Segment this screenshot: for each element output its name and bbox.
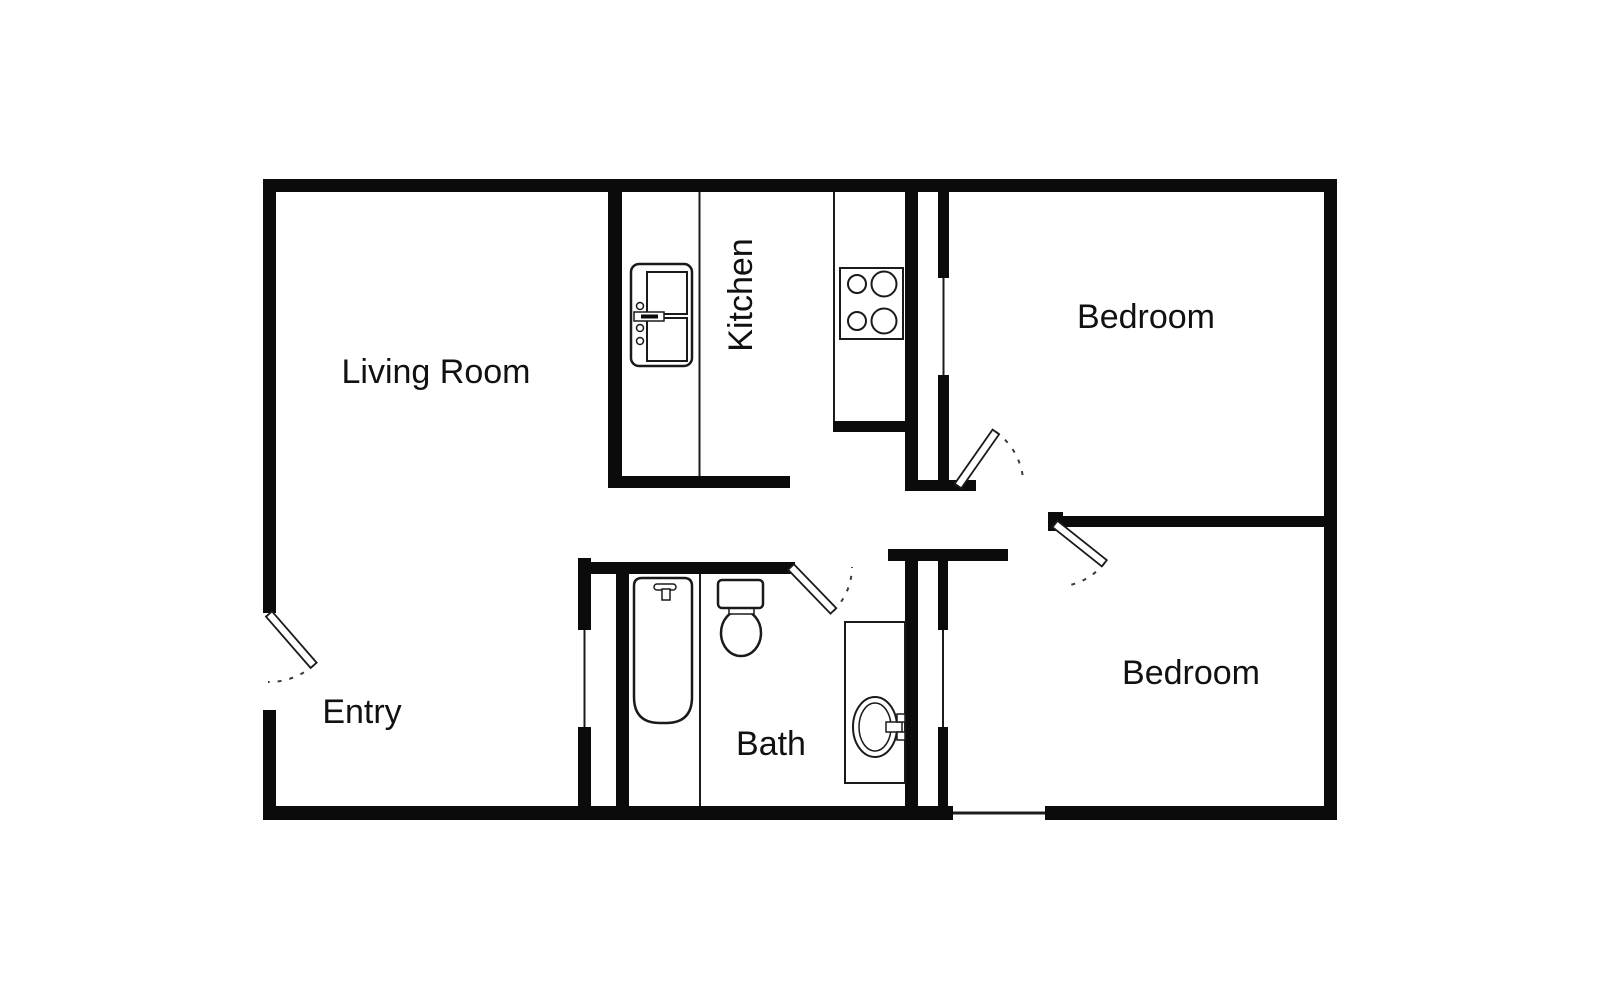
wall-bath-east-outer-upper: [938, 561, 948, 630]
sink-handle-top: [897, 714, 905, 722]
wall-kitchen-west: [608, 192, 622, 488]
bedroom2-door-arc: [1064, 563, 1105, 586]
wall-bath-west-upper: [578, 558, 591, 630]
wall-bath-north: [578, 562, 795, 574]
wall-bath-west-lower: [578, 727, 591, 807]
bedroom1-door-leaf: [955, 430, 999, 489]
bathtub-faucet-stem: [662, 589, 670, 600]
entry-door-leaf: [266, 611, 317, 668]
walls-group: [263, 179, 1337, 820]
oven-handle-grip: [641, 315, 658, 319]
bedroom-top-label: Bedroom: [1077, 298, 1215, 336]
wall-exterior-left-lower: [263, 710, 276, 820]
bedroom2-door-leaf: [1053, 521, 1107, 566]
sink-handle-bottom: [897, 732, 905, 740]
wall-bedroom-divider: [1050, 516, 1337, 527]
stove-burner-small-bottom: [848, 312, 866, 330]
living-room-label: Living Room: [342, 353, 531, 391]
sink-faucet: [886, 722, 902, 732]
bath-label: Bath: [736, 725, 806, 763]
toilet-icon: [718, 580, 763, 608]
wall-kitchen-east: [905, 192, 918, 491]
floor-plan-canvas: Living Room Kitchen Bedroom Bedroom Bath…: [0, 0, 1600, 1003]
entry-door-arc: [268, 665, 314, 682]
bedroom-bottom-label: Bedroom: [1122, 654, 1260, 692]
floor-plan-drawing: Living Room Kitchen Bedroom Bedroom Bath…: [0, 0, 1600, 1003]
kitchen-fixtures: [631, 264, 903, 366]
wall-bath-east-outer-lower: [938, 727, 948, 807]
room-labels: Living Room Kitchen Bedroom Bedroom Bath…: [322, 238, 1260, 763]
wall-bedroom1-west-upper: [938, 192, 949, 278]
stove-burner-small-top: [848, 275, 866, 293]
wall-exterior-bottom-left: [263, 806, 953, 820]
oven-knob-1: [637, 303, 644, 310]
oven-door-upper: [647, 272, 687, 314]
wall-kitchen-south: [608, 476, 790, 488]
kitchen-label: Kitchen: [722, 238, 760, 351]
wall-bedroom1-west-lower: [938, 375, 949, 491]
wall-exterior-right: [1324, 179, 1337, 820]
stove-burner-large-bottom: [872, 309, 897, 334]
wall-tub-alcove-west: [616, 562, 629, 807]
toilet-bowl: [721, 610, 761, 656]
oven-knob-3: [637, 338, 644, 345]
stove-burner-large-top: [872, 272, 897, 297]
bath-door-leaf: [788, 564, 836, 613]
bedroom1-door-arc: [996, 432, 1023, 478]
wall-exterior-left-upper: [263, 179, 276, 613]
entry-label: Entry: [322, 693, 401, 731]
wall-exterior-top: [263, 179, 1337, 192]
oven-door-lower: [647, 318, 687, 361]
wall-hall-north: [888, 549, 1008, 561]
wall-exterior-bottom-right: [1045, 806, 1337, 820]
oven-knob-2: [637, 325, 644, 332]
bath-door-arc: [833, 567, 852, 611]
wall-bath-east-inner: [905, 561, 918, 807]
